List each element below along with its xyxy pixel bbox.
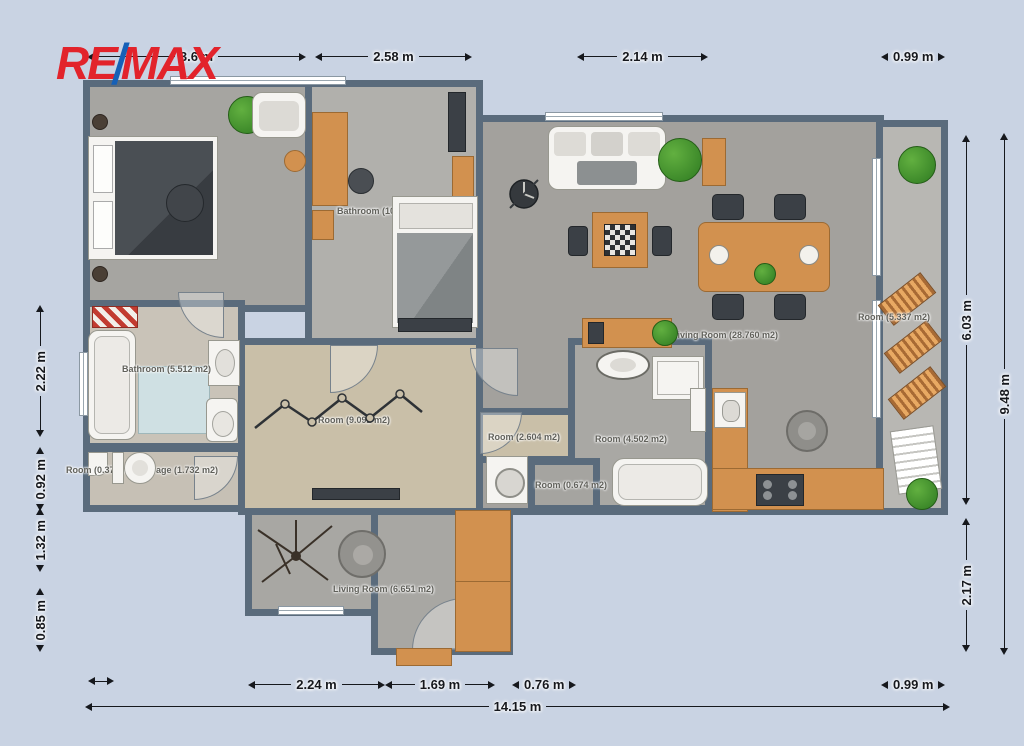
chess-chair-right [652,226,672,256]
wall-cabinet-bath2 [690,388,706,432]
kitchen-sink [714,392,746,428]
dim-left-4: 0.85 m [32,588,48,652]
dining-chair-1 [712,194,744,220]
planter-bottom [396,648,452,666]
label-room-bathroom-left: Bathroom (5.512 m2) [122,364,211,374]
dim-bottom-3: 0.76 m [512,677,578,692]
washing-machine [486,456,528,504]
dim-top-4: 0.99 m [881,49,947,64]
dim-bottom-4: 0.99 m [881,677,947,692]
dim-bottom-3-label: 0.76 m [519,677,569,692]
cabinet-study [452,156,474,198]
bench-study [398,318,472,332]
label-room-living: Living Room (28.760 m2) [672,330,778,340]
label-room-study: Bathroom (10 [337,206,395,216]
window-extension-bottom [278,606,344,615]
dining-chair-2 [774,194,806,220]
logo-max: MAX [121,37,217,89]
dim-left-2-label: 0.92 m [33,454,48,504]
label-room-balcony: Room (5.337 m2) [858,312,930,322]
coffee-maker-icon [588,322,604,344]
dim-overall-width-label: 14.15 m [489,699,547,714]
dim-left-3-label: 1.32 m [33,515,48,565]
dining-chair-3 [712,294,744,320]
logo-slash-icon: / [113,36,124,92]
dim-bottom-stub [88,677,114,685]
shelf-study [312,210,334,240]
bathroom-bench [92,306,138,328]
window-bathroom-left-wall [79,352,88,416]
dim-right-1: 6.03 m [958,135,974,505]
bedside-lamp-bottom [92,266,108,282]
dim-top-2: 2.58 m [315,49,472,64]
dim-right-2: 9.48 m [996,133,1012,655]
dim-bottom-2: 1.69 m [385,677,495,692]
dim-overall-width: 14.15 m [85,699,950,714]
bathroom-sink-left [208,340,240,386]
desk [312,112,348,206]
stove [756,474,804,506]
round-table-extension [338,530,386,578]
label-room-extension: Living Room (6.651 m2) [333,584,434,594]
chess-chair-left [568,226,588,256]
wall-clock-icon [504,174,544,214]
dim-top-4-label: 0.99 m [888,49,938,64]
shoe-cabinet [312,488,400,500]
wardrobe-extension [455,510,511,652]
chessboard [604,224,636,256]
dining-chair-4 [774,294,806,320]
dim-bottom-4-label: 0.99 m [888,677,938,692]
dim-right-3-label: 2.17 m [959,560,974,610]
dim-right-2-label: 9.48 m [997,369,1012,419]
window-living-balcony-1 [872,158,881,276]
plant-balcony-top-icon [898,146,936,184]
toilet-wc-tank [112,452,124,484]
bedside-lamp-top [92,114,108,130]
dim-top-3-label: 2.14 m [617,49,667,64]
shower-area [138,366,210,434]
dim-top-2-label: 2.58 m [368,49,418,64]
toilet-wc-bowl [124,452,156,484]
dim-left-2: 0.92 m [32,447,48,503]
dim-right-3: 2.17 m [958,518,974,652]
single-bed [392,196,478,328]
label-room-bathroom-2: Room (4.502 m2) [595,434,667,444]
label-room-small-2: Room (0.674 m2) [535,480,607,490]
coat-rack-icon [250,386,430,441]
floor-plan-canvas: RE/MAX [0,0,1024,746]
small-round-table [786,410,828,452]
remax-logo: RE/MAX [56,40,217,86]
plant-balcony-bottom-icon [906,478,938,510]
dim-bottom-2-label: 1.69 m [415,677,465,692]
desk-chair [348,168,374,194]
dim-top-3: 2.14 m [577,49,708,64]
dining-table [698,222,830,292]
dim-left-3: 1.32 m [32,508,48,585]
bathtub-left [88,330,136,440]
dim-left-1: 2.22 m [32,305,48,437]
dim-left-1-label: 2.22 m [33,346,48,396]
plant-living-icon [658,138,702,182]
dim-left-4-label: 0.85 m [33,595,48,645]
logo-re: RE [56,37,116,89]
label-room-small-1: Room (2.604 m2) [488,432,560,442]
dim-right-1-label: 6.03 m [959,295,974,345]
branch-decor-icon [252,516,340,594]
tv-panel [448,92,466,152]
armchair-bedroom [252,92,306,138]
plant-bar-icon [652,320,678,346]
window-living-top [545,112,663,121]
toilet-left [206,398,238,442]
dim-bottom-1-label: 2.24 m [291,677,341,692]
sofa [548,126,666,190]
round-chair [166,184,204,222]
dim-bottom-1: 2.24 m [248,677,385,692]
console-living [702,138,726,186]
side-table-bedroom [284,150,306,172]
vanity-sink-oval [596,350,650,380]
bathtub-2 [612,458,708,506]
